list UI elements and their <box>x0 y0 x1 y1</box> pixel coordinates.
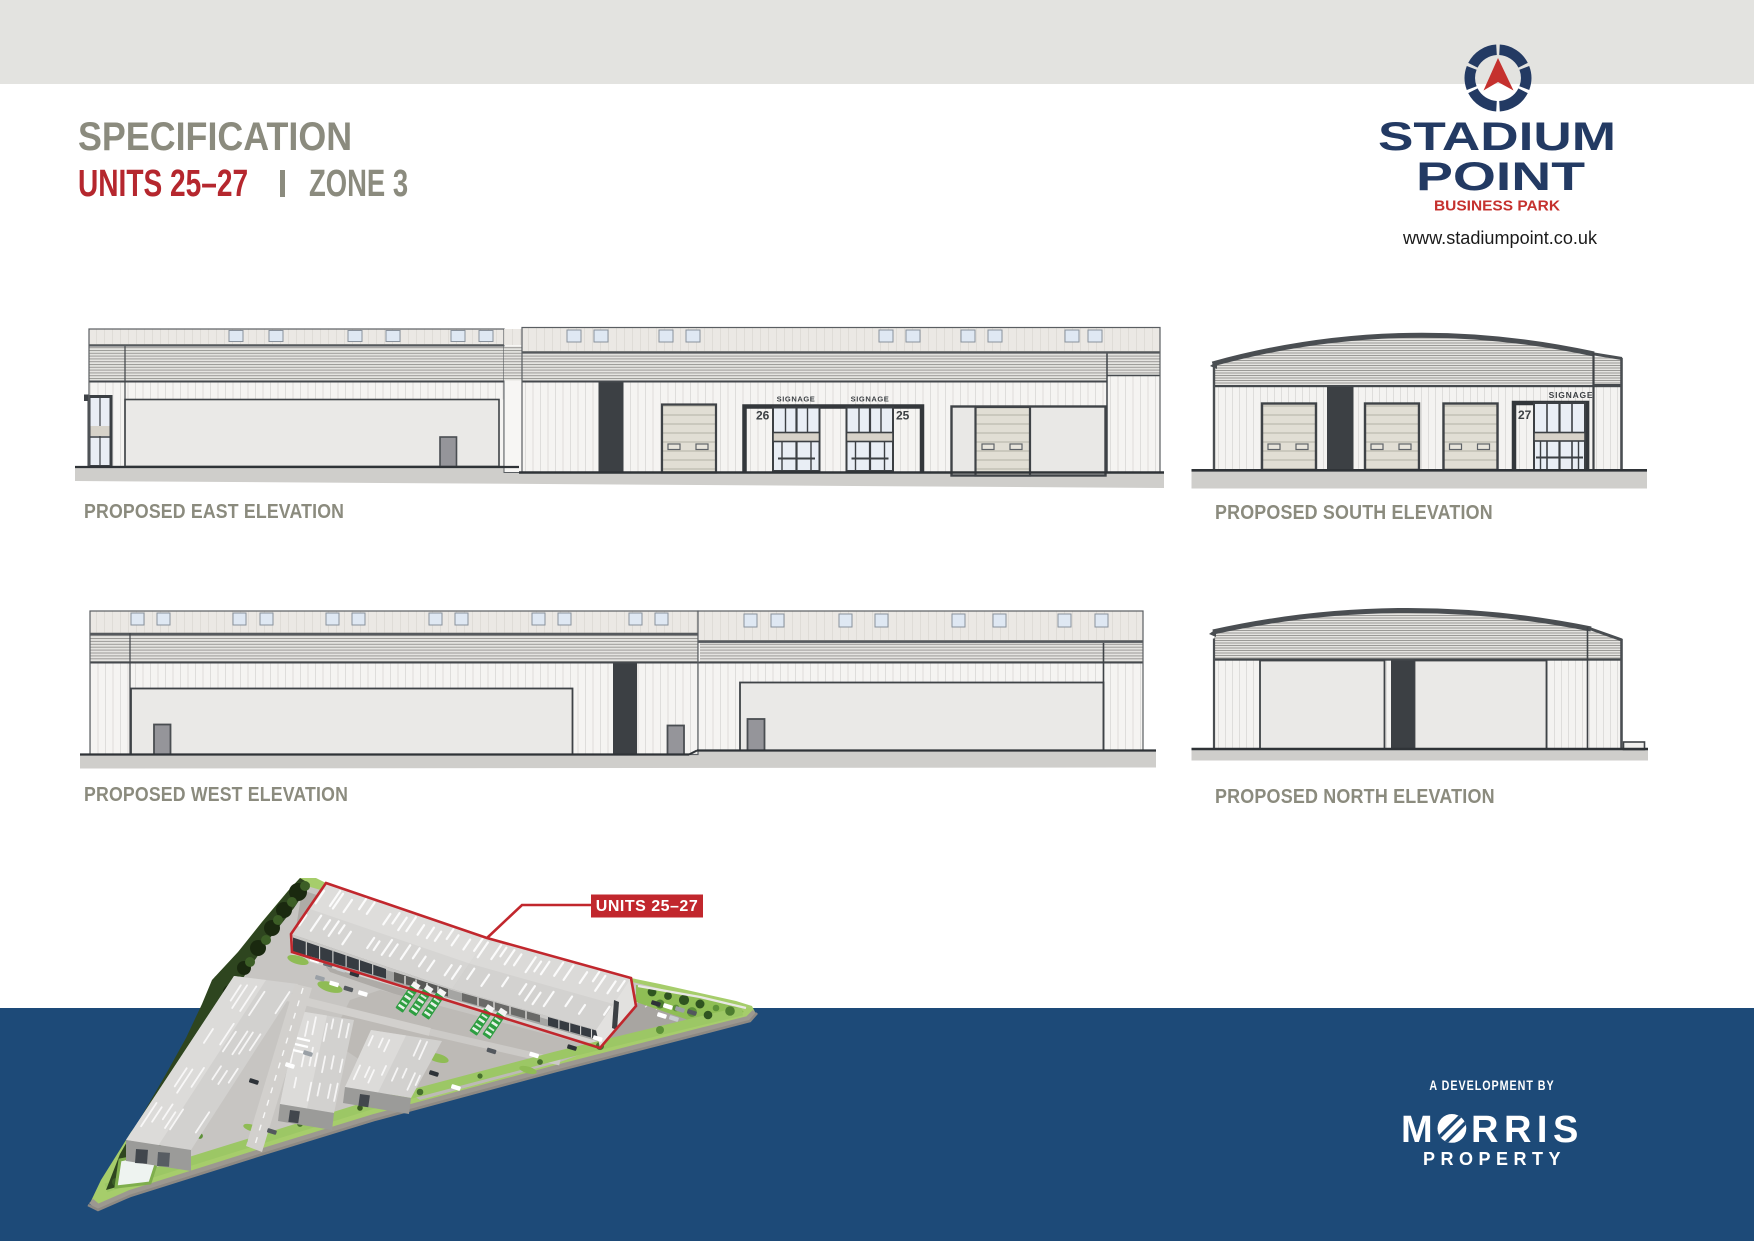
svg-text:SIGNAGE: SIGNAGE <box>1549 390 1594 400</box>
svg-text:POINT: POINT <box>1416 155 1585 199</box>
svg-text:SIGNAGE: SIGNAGE <box>777 395 816 404</box>
svg-text:SIGNAGE: SIGNAGE <box>851 395 890 404</box>
svg-text:STADIUM: STADIUM <box>1378 115 1616 159</box>
svg-text:27: 27 <box>1518 408 1532 422</box>
svg-text:M: M <box>1401 1109 1433 1151</box>
svg-text:25: 25 <box>896 409 910 423</box>
svg-text:www.stadiumpoint.co.uk: www.stadiumpoint.co.uk <box>1402 227 1598 248</box>
svg-text:PROPERTY: PROPERTY <box>1423 1149 1566 1169</box>
svg-text:RRIS: RRIS <box>1471 1109 1584 1151</box>
svg-text:BUSINESS PARK: BUSINESS PARK <box>1434 199 1561 215</box>
svg-text:UNITS 25–27: UNITS 25–27 <box>596 898 698 915</box>
svg-text:26: 26 <box>756 409 770 423</box>
